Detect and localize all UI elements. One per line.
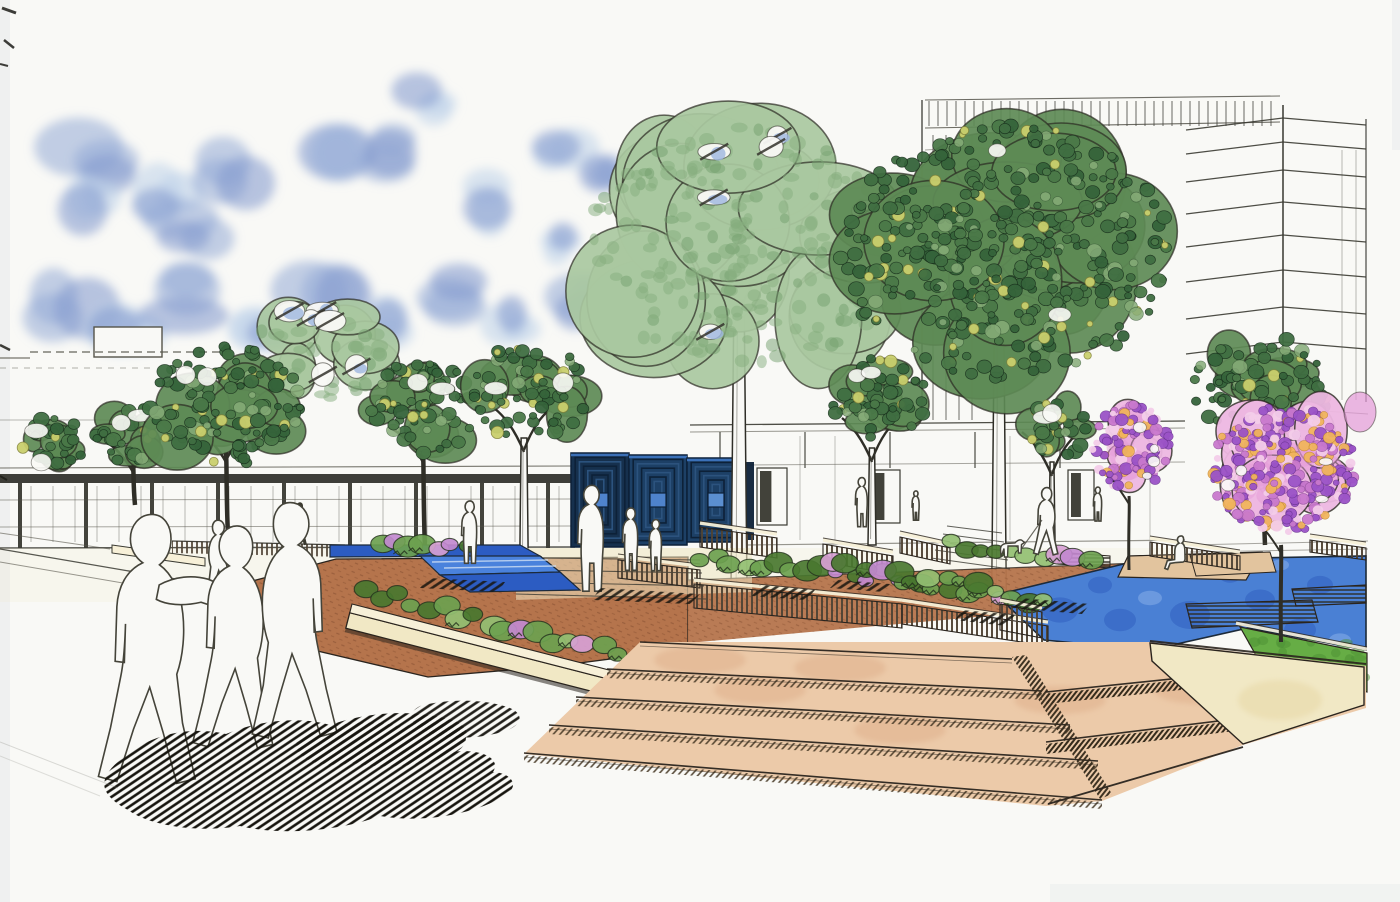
door-leaf (760, 471, 771, 522)
canopy-dot (860, 235, 868, 242)
canopy-dot (366, 406, 378, 417)
bloom-dot (1320, 411, 1328, 418)
canopy-dot (681, 237, 693, 251)
canopy-dot (998, 206, 1013, 219)
canopy-dot (1063, 295, 1070, 302)
tree-trunk (226, 452, 228, 535)
canopy-dot (1035, 267, 1048, 278)
canopy-gap (484, 382, 507, 395)
canopy-dot (547, 425, 563, 439)
canopy-dot (934, 255, 947, 267)
bloom-dot (1110, 411, 1116, 417)
canopy-dot (954, 138, 964, 147)
canopy-dot (938, 219, 953, 232)
canopy-dot (149, 405, 164, 419)
canopy-dot (607, 241, 619, 254)
shrub-clump (690, 554, 709, 567)
cloud-wash (391, 72, 442, 109)
canopy-dot (711, 179, 723, 188)
bloom-dot (1099, 470, 1106, 476)
canopy-dot (1129, 307, 1143, 320)
canopy-dot (1106, 183, 1114, 190)
canopy-dot (405, 432, 416, 442)
canopy-dot (534, 427, 543, 435)
canopy-fruit-dot (491, 426, 503, 438)
canopy-fruit-dot (1057, 322, 1067, 332)
canopy-dot (1248, 365, 1264, 379)
canopy-fruit-dot (903, 264, 913, 274)
canopy-dot (541, 359, 553, 370)
canopy-dot (193, 398, 208, 412)
canopy-dot (1087, 244, 1102, 258)
bloom-gap (1319, 458, 1332, 465)
canopy-dot (951, 263, 962, 273)
canopy-dot (306, 342, 316, 356)
canopy-dot (1080, 423, 1092, 434)
canopy-dot (222, 349, 234, 360)
canopy-dot (253, 430, 260, 436)
canopy-fruit-dot (1013, 236, 1025, 248)
bloom-dot (1287, 489, 1297, 499)
canopy-dot (688, 251, 699, 260)
bloom-dot (1115, 414, 1128, 426)
canopy-dot (1313, 360, 1320, 367)
canopy-dot (525, 388, 538, 400)
scan-edge-left (0, 0, 10, 902)
canopy-dot (615, 183, 628, 193)
canopy-fruit-dot (888, 234, 896, 242)
canopy-dot (731, 306, 743, 318)
shrub-clump (1079, 551, 1104, 569)
bloom-dot (1254, 516, 1265, 526)
canopy-fruit-dot (494, 349, 500, 355)
canopy-dot (676, 169, 688, 179)
scan-edge-right (1392, 0, 1400, 150)
bloom-dot (1233, 455, 1245, 466)
canopy-dot (515, 345, 529, 358)
canopy-dot (273, 331, 288, 341)
canopy-dot (1040, 192, 1050, 201)
bloom-dot (1323, 432, 1335, 443)
canopy-dot (1125, 292, 1132, 298)
colonnade-column (348, 483, 352, 548)
cloud-wash (217, 156, 275, 210)
canopy-dot (906, 224, 913, 230)
canopy-dot (983, 280, 990, 286)
lawn-dot (1257, 636, 1268, 645)
canopy-dot (407, 397, 416, 405)
canopy-dot (513, 412, 525, 423)
canopy-dot (1077, 411, 1089, 422)
canopy-dot (1054, 248, 1062, 255)
canopy-dot (238, 453, 250, 464)
canopy-dot (107, 449, 114, 456)
canopy-dot (604, 203, 614, 215)
canopy-dot (1082, 216, 1094, 227)
canopy-fruit-dot (998, 285, 1009, 296)
canopy-dot (1053, 197, 1063, 206)
canopy-dot (845, 229, 854, 237)
canopy-dot (839, 304, 849, 316)
colonnade-column (84, 483, 88, 548)
canopy-gap (1043, 404, 1062, 422)
canopy-fruit-dot (969, 324, 979, 334)
canopy-dot (1122, 177, 1132, 186)
canopy-dot (1089, 147, 1104, 161)
canopy-dot (293, 345, 307, 354)
canopy-dot (1014, 309, 1023, 317)
canopy-dot (331, 341, 341, 352)
canopy-dot (539, 378, 548, 386)
canopy-fruit-dot (488, 402, 495, 409)
bloom-dot (1339, 449, 1347, 456)
canopy-dot (598, 192, 611, 203)
canopy-dot (529, 412, 536, 419)
canopy-dot (476, 406, 486, 415)
bloom-dot (1309, 443, 1317, 451)
bloom-dot (1102, 437, 1111, 445)
bloom-dot (1302, 514, 1313, 524)
canopy-dot (805, 216, 818, 230)
cloud-wash (160, 262, 214, 298)
canopy-dot (157, 420, 172, 433)
canopy-dot (868, 193, 879, 203)
canopy-dot (1208, 353, 1223, 366)
cloud-wash (532, 130, 581, 165)
canopy-dot (1010, 325, 1019, 333)
canopy-dot (1060, 220, 1074, 233)
canopy-dot (910, 246, 925, 259)
canopy-gap (1049, 307, 1072, 321)
bloom-dot (1242, 509, 1255, 521)
canopy-dot (956, 320, 967, 330)
water-blotch (1088, 577, 1112, 594)
bloom-dot (1148, 415, 1158, 424)
canopy-dot (592, 255, 606, 267)
colonnade-column (546, 483, 550, 548)
canopy-dot (1079, 200, 1094, 213)
canopy-dot (879, 221, 892, 232)
canopy-dot (249, 392, 256, 398)
cloud-wash (364, 130, 417, 176)
canopy-dot (664, 230, 681, 242)
canopy-fruit-dot (853, 392, 864, 403)
canopy-fruit-dot (1007, 357, 1016, 366)
canopy-dot (1145, 308, 1153, 315)
bloom-dot (1281, 442, 1289, 450)
canopy-dot (1015, 260, 1028, 272)
canopy-fruit-dot (216, 415, 227, 426)
canopy-dot (810, 192, 819, 200)
tree-trunk (423, 452, 425, 548)
canopy-dot (919, 269, 932, 281)
canopy-dot (393, 405, 409, 419)
canopy-dot (742, 335, 752, 344)
canopy-dot (453, 368, 461, 375)
canopy-dot (76, 451, 86, 460)
canopy-dot (645, 183, 656, 191)
canopy-dot (1014, 195, 1029, 209)
canopy-dot (1151, 238, 1159, 245)
bloom-dot (1316, 441, 1327, 451)
canopy-dot (1107, 152, 1116, 160)
canopy-dot (882, 243, 891, 251)
canopy-fruit-dot (17, 442, 28, 453)
canopy-dot (426, 361, 434, 368)
bloom-dot (1263, 503, 1270, 510)
bloom-dot (1271, 480, 1278, 487)
canopy-dot (371, 340, 388, 353)
canopy-dot (174, 426, 188, 439)
bloom-gap (1133, 422, 1146, 433)
bloom-dot (1150, 424, 1163, 436)
canopy-dot (1033, 211, 1044, 221)
canopy-dot (803, 342, 819, 351)
bloom-dot (1310, 466, 1317, 472)
canopy-dot (1095, 202, 1102, 209)
bloom-dot (1129, 400, 1139, 409)
canopy-dot (890, 262, 903, 274)
sculpture-center-square (650, 493, 666, 507)
canopy-gap (112, 415, 131, 431)
canopy-dot (660, 166, 677, 181)
bloom-dot (1254, 461, 1265, 471)
canopy-dot (783, 173, 799, 182)
canopy-dot (1129, 259, 1138, 267)
canopy-dot (1021, 277, 1035, 290)
canopy-dot (828, 407, 842, 420)
canopy-fruit-dot (884, 355, 897, 368)
canopy-dot (847, 247, 862, 260)
canopy-dot (1156, 211, 1171, 225)
canopy-fruit-dot (1053, 128, 1059, 134)
canopy-dot (890, 286, 897, 293)
canopy-fruit-dot (421, 402, 427, 408)
bloom-dot (1310, 456, 1317, 463)
canopy-dot (655, 267, 666, 280)
canopy-dot (1004, 165, 1012, 172)
canopy-dot (432, 368, 442, 377)
canopy-dot (793, 153, 802, 167)
cloud-wash (463, 187, 512, 230)
shrub-clump (987, 585, 1003, 597)
canopy-fruit-dot (898, 375, 908, 385)
canopy-dot (1094, 274, 1104, 283)
canopy-dot (638, 331, 650, 345)
canopy-dot (350, 341, 364, 354)
canopy-dot (1028, 366, 1039, 376)
canopy-dot (1035, 426, 1050, 439)
canopy-dot (1115, 323, 1124, 331)
canopy-dot (1117, 331, 1129, 342)
bloom-dot (1213, 440, 1223, 449)
canopy-dot (705, 343, 720, 354)
bloom-dot (1266, 441, 1272, 447)
canopy-dot (804, 237, 818, 251)
canopy-fruit-dot (876, 356, 885, 365)
bloom-dot (1148, 408, 1155, 414)
canopy-dot (795, 225, 805, 234)
canopy-dot (988, 230, 997, 238)
bloom-dot (1271, 520, 1283, 531)
canopy-dot (957, 247, 970, 259)
canopy-dot (1134, 286, 1147, 298)
canopy-dot (540, 390, 550, 399)
canopy-dot (685, 269, 699, 277)
canopy-dot (1061, 428, 1071, 437)
canopy-fruit-dot (1162, 242, 1168, 248)
canopy-dot (907, 422, 917, 431)
canopy-dot (185, 417, 197, 427)
canopy-dot (1031, 139, 1040, 147)
canopy-dot (256, 324, 267, 338)
canopy-dot (513, 395, 520, 402)
canopy-dot (296, 404, 303, 411)
canopy-dot (829, 337, 843, 347)
canopy-dot (931, 243, 939, 250)
canopy-dot (870, 400, 880, 409)
bloom-dot (1220, 465, 1232, 476)
canopy-dot (999, 234, 1008, 242)
canopy-dot (226, 410, 236, 419)
bloom-gap (1142, 472, 1151, 479)
canopy-dot (1190, 375, 1199, 383)
canopy-dot (287, 373, 299, 383)
canopy-dot (590, 233, 599, 245)
canopy-dot (949, 367, 957, 374)
bloom-dot (1282, 515, 1292, 524)
canopy-dot (883, 202, 897, 215)
canopy-dot (577, 403, 589, 414)
canopy-dot (742, 230, 755, 239)
bloom-dot (1254, 429, 1263, 437)
canopy-dot (651, 146, 668, 157)
canopy-dot (731, 199, 740, 210)
canopy-dot (50, 423, 63, 435)
canopy-dot (650, 333, 661, 344)
canopy-dot (1008, 284, 1023, 297)
canopy-dot (812, 322, 825, 333)
canopy-dot (731, 123, 748, 133)
canopy-dot (695, 222, 710, 231)
canopy-dot (828, 174, 842, 189)
canopy-dot (939, 319, 946, 326)
canopy-dot (117, 440, 125, 447)
canopy-dot (187, 390, 197, 399)
canopy-dot (881, 253, 892, 263)
canopy-dot (573, 376, 581, 383)
canopy-dot (912, 211, 920, 218)
bloom-dot (1347, 477, 1358, 487)
bloom-dot (1232, 437, 1241, 445)
canopy-dot (938, 233, 951, 245)
canopy-dot (1012, 340, 1025, 352)
canopy-dot (157, 364, 173, 378)
bloom-dot (1271, 461, 1279, 468)
canopy-dot (965, 368, 977, 379)
canopy-dot (648, 306, 660, 318)
canopy-dot (1300, 351, 1308, 358)
canopy-dot (965, 146, 974, 154)
canopy-fruit-dot (390, 401, 396, 407)
canopy-dot (621, 276, 633, 287)
canopy-dot (1116, 233, 1128, 244)
canopy-gap (430, 382, 454, 395)
canopy-dot (780, 213, 789, 223)
canopy-dot (51, 415, 58, 422)
canopy-dot (755, 320, 767, 330)
canopy-dot (1062, 235, 1071, 243)
canopy-dot (909, 188, 916, 195)
canopy-dot (643, 243, 657, 252)
colonnade-column (480, 483, 484, 548)
bloom-gap (1236, 465, 1247, 476)
canopy-dot (1100, 176, 1107, 183)
sculpture-center-square (708, 493, 724, 507)
canopy-dot (678, 296, 688, 310)
bloom-dot (1106, 477, 1113, 484)
canopy-gap (989, 144, 1006, 157)
canopy-dot (482, 371, 495, 383)
canopy-fruit-dot (1084, 352, 1091, 359)
shrub-clump (401, 599, 419, 612)
canopy-dot (953, 280, 964, 290)
canopy-dot (1062, 449, 1074, 460)
canopy-dot (1267, 343, 1277, 352)
canopy-dot (1051, 297, 1064, 308)
canopy-fruit-dot (161, 434, 169, 442)
canopy-dot (1048, 284, 1058, 293)
canopy-dot (977, 125, 987, 134)
canopy-fruit-dot (1038, 221, 1049, 232)
canopy-dot (1216, 344, 1226, 353)
canopy-dot (899, 398, 914, 411)
canopy-dot (1018, 358, 1031, 369)
canopy-dot (1011, 172, 1025, 185)
canopy-gap (31, 454, 51, 471)
canopy-dot (641, 270, 656, 279)
canopy-dot (896, 157, 907, 167)
canopy-dot (856, 202, 866, 211)
water-weir-grate (1292, 585, 1366, 606)
shrub-clump (916, 570, 940, 588)
canopy-dot (188, 438, 196, 445)
canopy-dot (1058, 354, 1073, 367)
cloud-wash (58, 184, 108, 236)
canopy-dot (290, 417, 301, 427)
canopy-dot (888, 292, 896, 299)
canopy-dot (530, 348, 543, 360)
canopy-dot (473, 372, 480, 379)
bloom-gap (1316, 496, 1329, 503)
canopy-dot (1232, 374, 1241, 382)
canopy-dot (903, 247, 911, 254)
cloud-wash (156, 221, 209, 253)
canopy-dot (971, 266, 982, 276)
rendering-canvas (0, 0, 1400, 902)
canopy-dot (274, 403, 281, 409)
canopy-gap (176, 366, 195, 384)
canopy-dot (193, 347, 205, 358)
canopy-fruit-dot (949, 343, 956, 350)
canopy-dot (687, 347, 703, 356)
canopy-fruit-dot (1028, 435, 1037, 444)
canopy-dot (249, 367, 257, 374)
canopy-gap (198, 368, 217, 386)
canopy-dot (934, 285, 941, 291)
canopy-dot (793, 278, 802, 287)
canopy-dot (866, 432, 876, 441)
